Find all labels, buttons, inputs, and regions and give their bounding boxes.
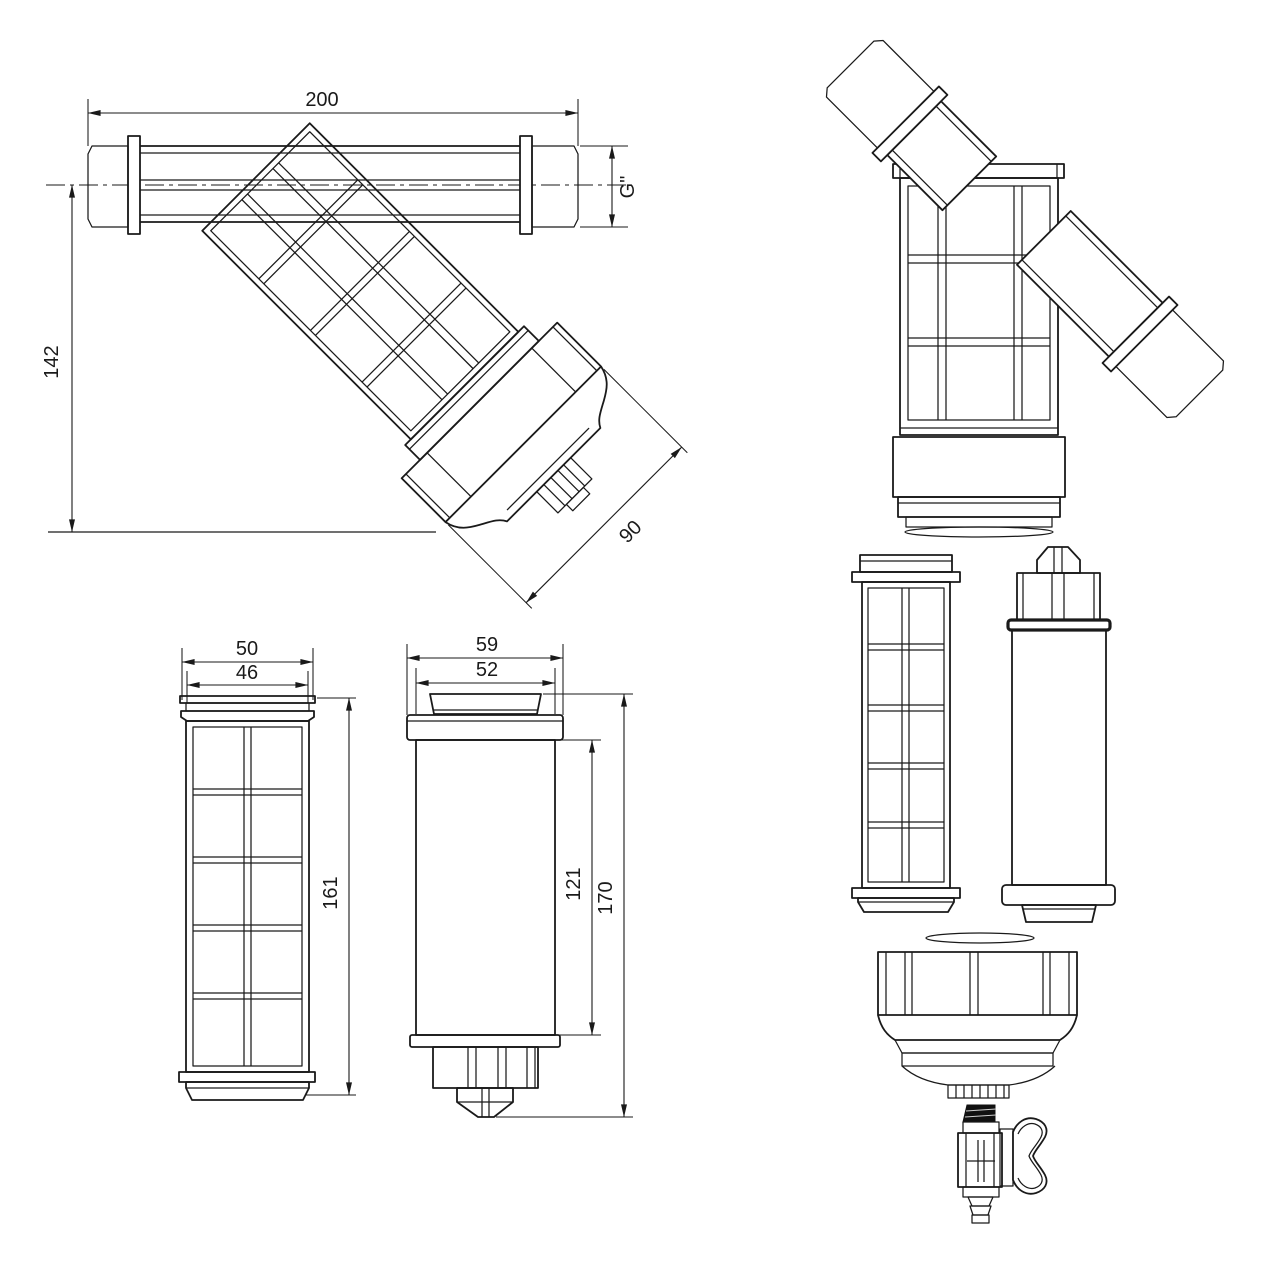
bowl-flange — [407, 715, 563, 740]
dimension-142: 142 — [41, 185, 72, 532]
drain-boss — [433, 1047, 538, 1088]
valve-body — [958, 1133, 1002, 1187]
bowl-open-flange — [1002, 885, 1115, 905]
bowl-rim — [1008, 620, 1110, 630]
dim-52-label: 52 — [476, 659, 498, 681]
drain-valve — [958, 1105, 1047, 1223]
bowl-tip — [1037, 547, 1080, 573]
dim-50-label: 50 — [236, 638, 258, 660]
view-screen: 50 46 161 — [179, 638, 356, 1100]
dim-142-label: 142 — [41, 345, 63, 378]
left-thread — [88, 146, 128, 227]
housing-cage — [202, 123, 518, 439]
bowl-body — [416, 740, 555, 1035]
dim-161-label: 161 — [320, 876, 342, 909]
dim-200-label: 200 — [305, 89, 338, 111]
screen-front — [179, 696, 315, 1100]
body-cage — [893, 164, 1064, 435]
dimension-200: 200 — [88, 89, 578, 146]
left-flange — [128, 136, 140, 234]
drain-tip — [457, 1088, 513, 1117]
dim-g-label: G" — [617, 176, 639, 199]
dimension-g-thread: G" — [580, 146, 639, 227]
view-exploded — [852, 527, 1115, 1223]
dim-170-label: 170 — [595, 881, 617, 914]
technical-drawing-canvas: 90 200 — [0, 0, 1280, 1280]
hose-barb — [968, 1197, 993, 1223]
thread-collar — [898, 497, 1060, 527]
bowl-cylinder — [1012, 630, 1106, 885]
technical-drawing-page: 90 200 — [0, 0, 1280, 1280]
dimension-90: 90 — [448, 369, 706, 627]
ring-nut — [387, 308, 632, 553]
inlet-pipe — [817, 31, 1002, 216]
bowl-side — [407, 694, 563, 1117]
dim-90-label: 90 — [615, 516, 646, 547]
right-flange — [520, 136, 532, 234]
dimension-170: 170 — [496, 694, 633, 1117]
view-bowl: 59 52 121 170 — [407, 634, 633, 1117]
view-side: 90 200 — [41, 89, 706, 627]
o-ring-bottom — [926, 933, 1034, 943]
dim-121-label: 121 — [563, 867, 585, 900]
exploded-filter-bowl — [1002, 547, 1115, 922]
pipe-body — [140, 146, 520, 222]
screen-top-plate — [180, 696, 315, 703]
ring-nut-cap — [878, 952, 1077, 1098]
dimension-161: 161 — [305, 698, 356, 1095]
right-thread — [532, 146, 578, 227]
screen-grid — [186, 721, 309, 1072]
valve-thread-nipple — [963, 1105, 995, 1122]
outlet-pipe — [1011, 205, 1233, 427]
cap-thread-crown — [948, 1085, 1009, 1098]
view-rotated — [817, 31, 1232, 527]
coarse-thread — [893, 437, 1065, 497]
dim-46-label: 46 — [236, 662, 258, 684]
bowl-lip — [430, 694, 541, 714]
exploded-screen-cartridge — [852, 555, 960, 912]
screen-bottom-cap — [179, 1072, 315, 1100]
inlet-pipe-body — [887, 101, 996, 210]
bowl-bottom-flange — [410, 1035, 560, 1047]
o-ring-top — [905, 527, 1053, 537]
bowl-ribbed-boss — [1017, 573, 1100, 620]
dim-59-label: 59 — [476, 634, 498, 656]
drain-plug — [537, 458, 599, 520]
dimension-52: 52 — [416, 659, 555, 714]
